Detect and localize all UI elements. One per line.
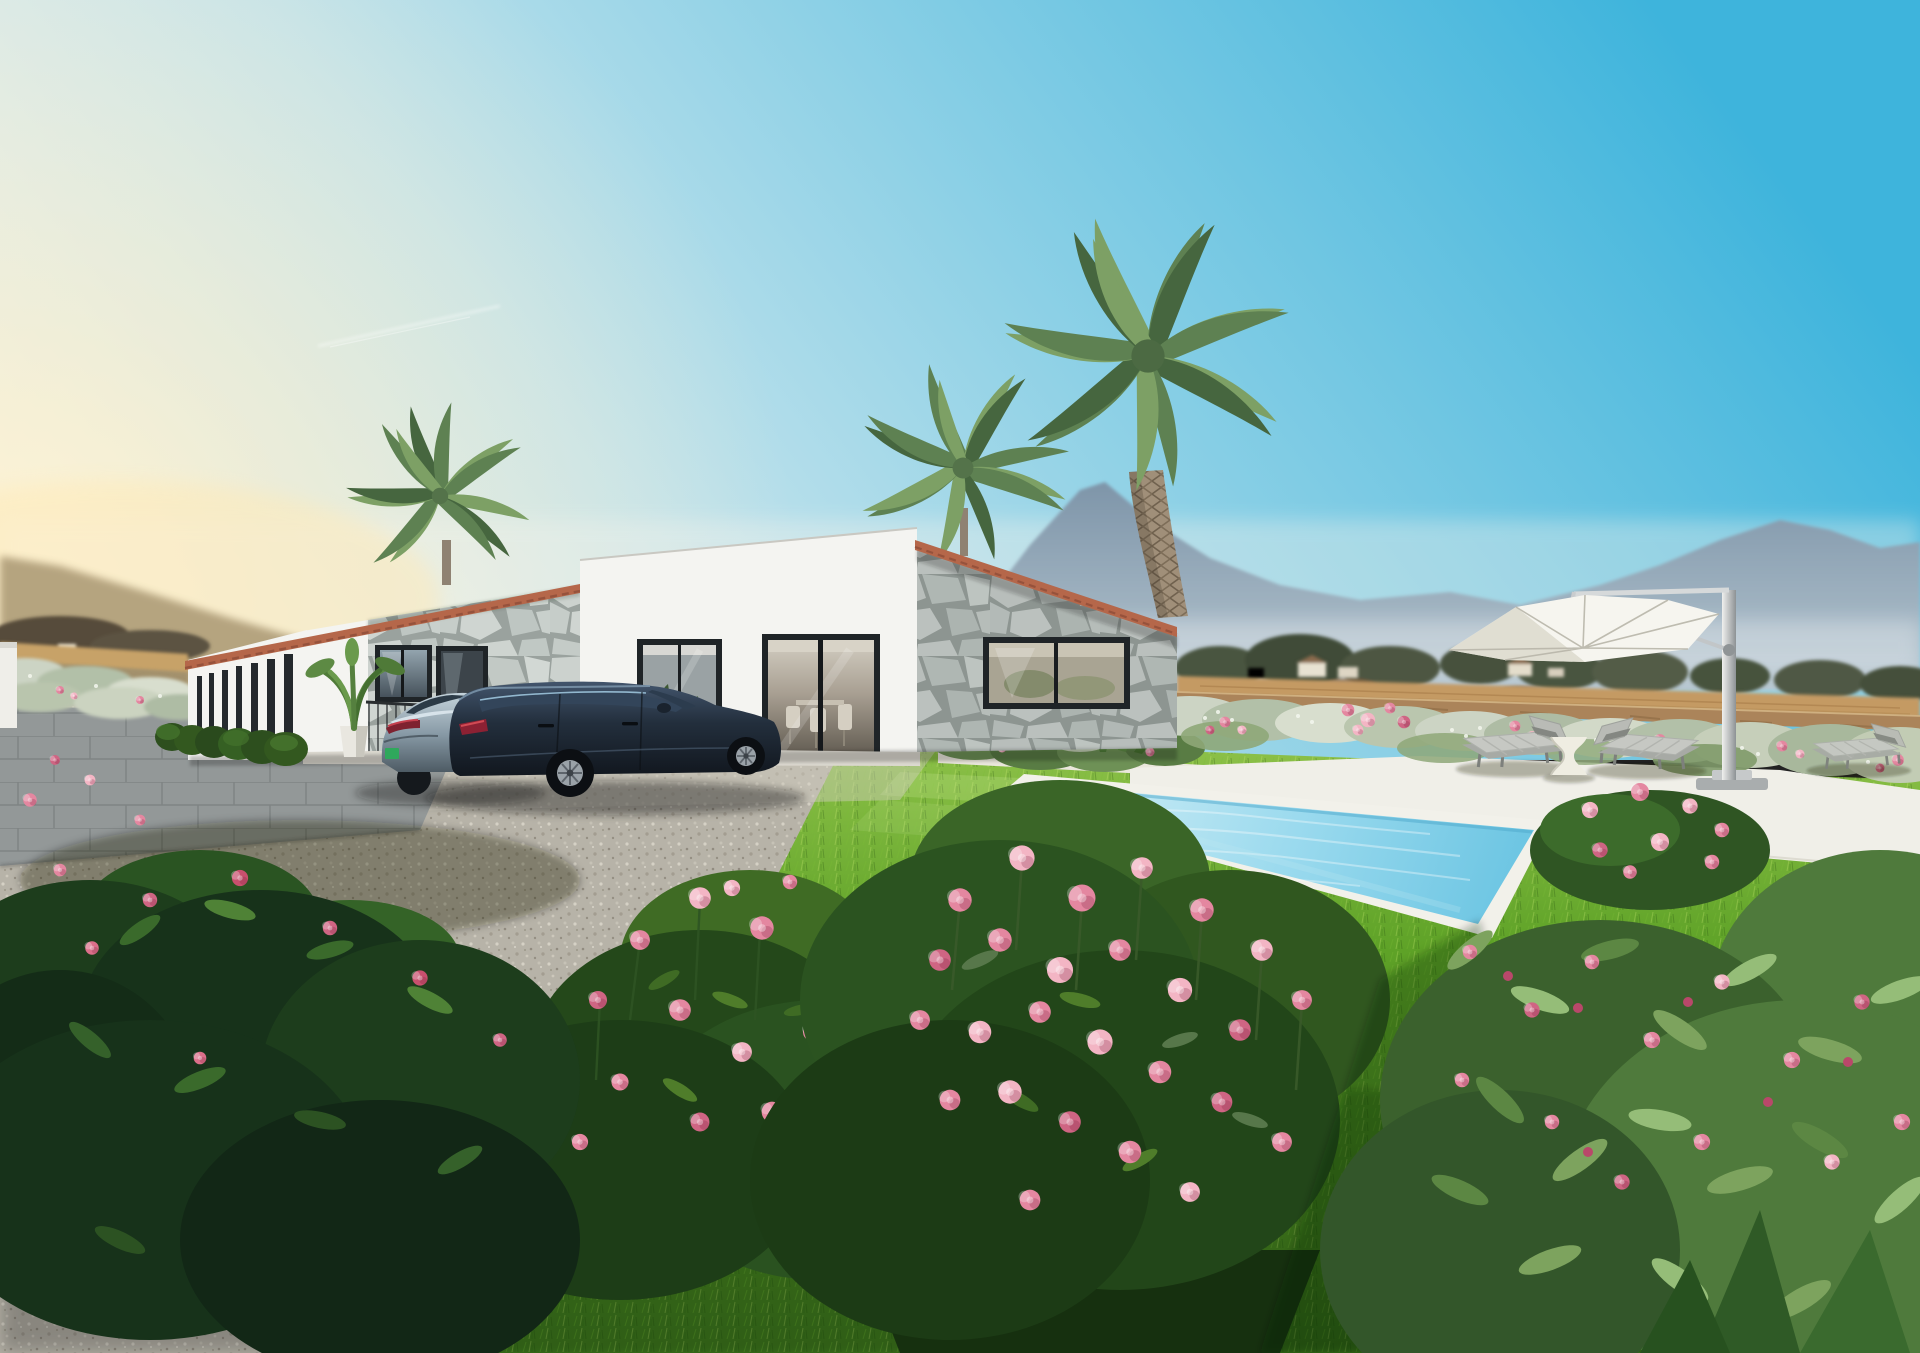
villa-exterior-render: Photorealistic exterior rendering of a s… bbox=[0, 0, 1920, 1353]
wagon-shadow bbox=[425, 781, 805, 815]
green-license-plate bbox=[385, 748, 399, 759]
wheel-front bbox=[727, 737, 765, 775]
wheel-rear bbox=[546, 749, 594, 797]
oleander-bush-left bbox=[0, 755, 580, 1353]
picture-window bbox=[983, 637, 1130, 709]
gate-post bbox=[0, 642, 17, 728]
parasol-pole bbox=[1722, 590, 1736, 780]
